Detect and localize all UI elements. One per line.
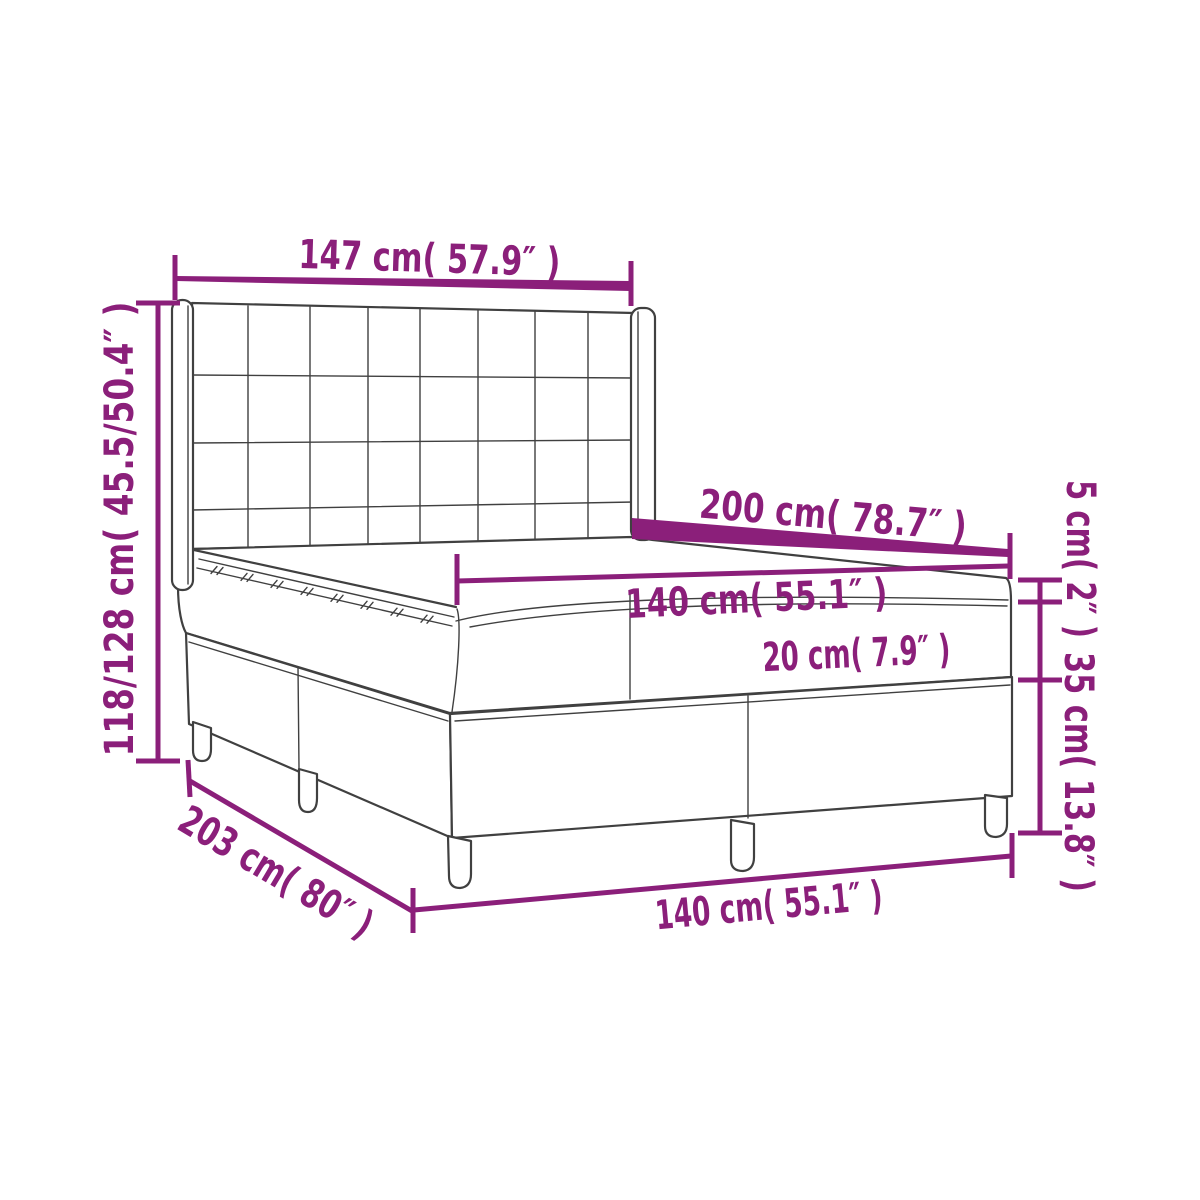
headboard-panel-face bbox=[192, 303, 634, 549]
bed-dimension-svg: 147 cm( 57.9″ ) 118/128 cm( 45.5/50.4″ )… bbox=[0, 0, 1200, 1200]
dim-headboard-width: 147 cm( 57.9″ ) bbox=[175, 232, 631, 306]
headboard-wing-left bbox=[172, 300, 193, 590]
base-side-division bbox=[298, 667, 299, 768]
dim-overall-height: 118/128 cm( 45.5/50.4″ ) bbox=[97, 302, 180, 762]
bed-leg bbox=[299, 769, 317, 812]
headboard-panel bbox=[192, 303, 634, 549]
bed-leg bbox=[193, 722, 211, 761]
dim-mattress-height: 20 cm( 7.9″ ) bbox=[761, 627, 951, 681]
dim-overall-height-label: 118/128 cm( 45.5/50.4″ ) bbox=[97, 302, 143, 757]
dimension-diagram: 147 cm( 57.9″ ) 118/128 cm( 45.5/50.4″ )… bbox=[0, 0, 1200, 1200]
headboard-wing-right bbox=[631, 308, 655, 540]
dim-base-width: 140 cm( 55.1″ ) bbox=[413, 833, 1012, 939]
dim-tick bbox=[188, 760, 190, 797]
dim-base-height-label: 35 cm( 13.8″ ) bbox=[1055, 652, 1101, 892]
dim-headboard-width-label: 147 cm( 57.9″ ) bbox=[298, 232, 561, 286]
bed-leg bbox=[731, 820, 754, 871]
dim-topper-height-label: 5 cm( 2″ ) bbox=[1057, 480, 1103, 638]
dim-mattress-height-label: 20 cm( 7.9″ ) bbox=[761, 627, 951, 681]
bed-leg bbox=[448, 836, 471, 888]
bed-leg bbox=[985, 795, 1007, 837]
dim-right-heights: 5 cm( 2″ ) 35 cm( 13.8″ ) bbox=[1018, 480, 1103, 892]
